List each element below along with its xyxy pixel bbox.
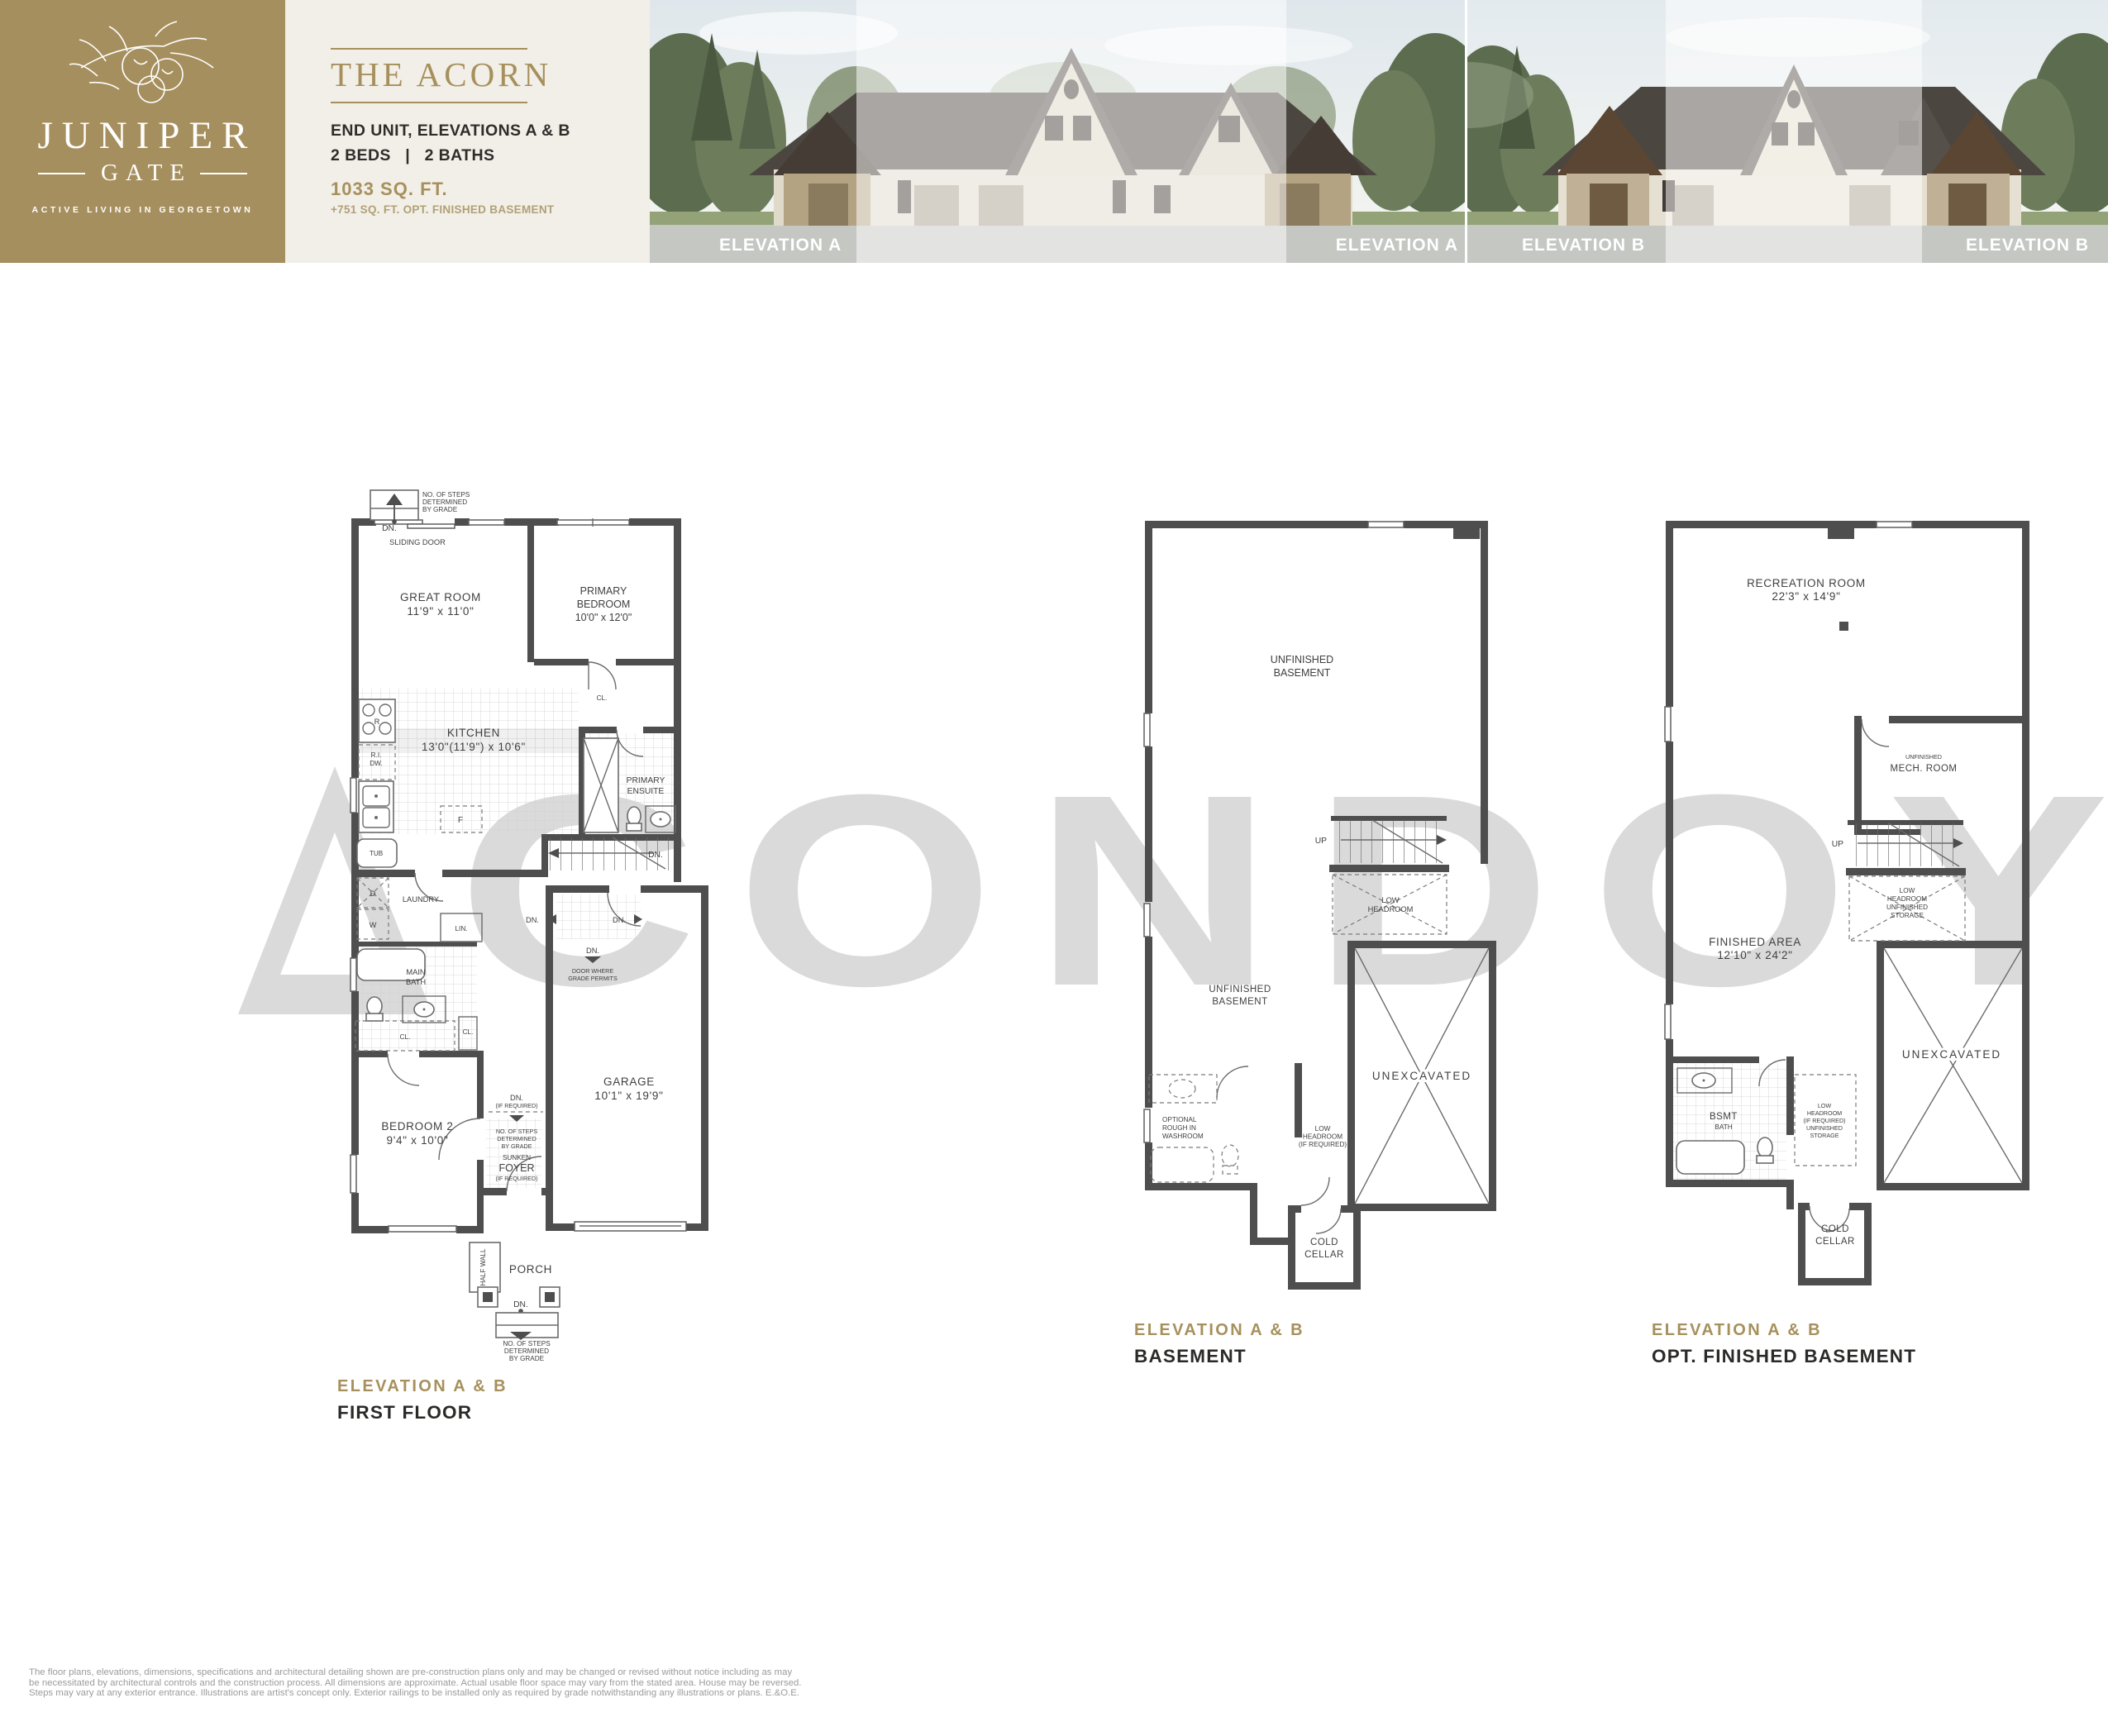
foyer-note: (IF REQUIRED) bbox=[495, 1175, 537, 1182]
brand-name-gate: GATE bbox=[38, 160, 247, 187]
dishwasher-label: R.I.DW. bbox=[370, 751, 382, 767]
unexcavated-area bbox=[1884, 948, 2022, 1183]
cold-cellar-label: COLDCELLAR bbox=[1815, 1224, 1855, 1247]
tub-label: TUB bbox=[370, 850, 384, 857]
first-floor-plan: NO. OF STEPSDETERMINEDBY GRADE DN. SLIDI… bbox=[335, 484, 748, 1364]
caption-elevation: ELEVATION A & B bbox=[1134, 1321, 1304, 1340]
brand-name: JUNIPER bbox=[0, 115, 285, 156]
disclaimer: The floor plans, elevations, dimensions,… bbox=[29, 1667, 1236, 1699]
square-footage-note: +751 SQ. FT. OPT. FINISHED BASEMENT bbox=[331, 203, 661, 216]
opt-finished-basement-caption: ELEVATION A & B OPT. FINISHED BASEMENT bbox=[1652, 1321, 1916, 1367]
low-headroom-label: LOWHEADROOM bbox=[1368, 896, 1414, 913]
first-floor-caption: ELEVATION A & B FIRST FLOOR bbox=[337, 1377, 508, 1424]
down-arrow-icon bbox=[584, 956, 601, 963]
plan-header: THE ACORN END UNIT, ELEVATIONS A & B 2 B… bbox=[331, 48, 661, 216]
opt-finished-basement-plan: RECREATION ROOM22'3" x 14'9" UNFINISHED … bbox=[1641, 496, 2063, 1310]
unexcavated-label: UNEXCAVATED bbox=[1902, 1048, 2001, 1061]
sliding-door-label: SLIDING DOOR bbox=[389, 538, 446, 546]
basement-caption: ELEVATION A & B BASEMENT bbox=[1134, 1321, 1304, 1367]
foyer-dn-label: DN. bbox=[510, 1094, 523, 1102]
juniper-branch-icon bbox=[64, 18, 222, 109]
steps-note-top: NO. OF STEPSDETERMINEDBY GRADE bbox=[422, 491, 470, 513]
mech-room-label: MECH. ROOM bbox=[1890, 764, 1957, 774]
cold-cellar-label: COLDCELLAR bbox=[1304, 1238, 1344, 1260]
closet-label: CL. bbox=[597, 694, 608, 702]
brand-tagline: ACTIVE LIVING IN GEORGETOWN bbox=[0, 205, 285, 215]
garage-label: GARAGE10'1" x 19'9" bbox=[594, 1075, 663, 1102]
bedroom2-label: BEDROOM 29'4" x 10'0" bbox=[381, 1120, 453, 1147]
foyer-steps-note: NO. OF STEPSDETERMINEDBY GRADE bbox=[496, 1128, 538, 1150]
caption-floor: BASEMENT bbox=[1134, 1346, 1304, 1367]
side-door-dn-label: DN. bbox=[586, 947, 599, 955]
porch-label: PORCH bbox=[509, 1263, 552, 1276]
disclaimer-line: be necessitated by architectural control… bbox=[29, 1678, 1236, 1689]
stairs-up bbox=[1333, 820, 1447, 934]
mech-room-small-label: UNFINISHED bbox=[1905, 753, 1942, 761]
stairs-up bbox=[1849, 823, 1965, 941]
up-label: UP bbox=[1315, 837, 1327, 846]
primary-bedroom-label: PRIMARYBEDROOM10'0" x 12'0" bbox=[575, 585, 632, 623]
header-band: JUNIPER GATE ACTIVE LIVING IN GEORGETOWN… bbox=[0, 0, 2108, 263]
linen-label: LIN. bbox=[455, 925, 467, 932]
sunken-label: SUNKEN bbox=[503, 1154, 531, 1161]
walls bbox=[1145, 521, 1496, 1290]
square-footage: 1033 SQ. FT. bbox=[331, 179, 661, 200]
dryer-label: D bbox=[370, 889, 376, 898]
fridge-label: F bbox=[458, 816, 463, 825]
elevation-b-rendering: ELEVATION B ELEVATION B bbox=[1465, 0, 2108, 263]
low-headroom-storage-label: LOWHEADROOMUNFINISHEDSTORAGE bbox=[1886, 887, 1928, 919]
door-arcs bbox=[1301, 1177, 1341, 1233]
foyer-dn-note: (IF REQUIRED) bbox=[495, 1102, 537, 1109]
caption-floor: FIRST FLOOR bbox=[337, 1402, 508, 1424]
disclaimer-line: Steps may vary at any exterior entrance.… bbox=[29, 1688, 1236, 1699]
elevation-a-label-left: ELEVATION A bbox=[719, 236, 842, 255]
door-where-grade-label: DOOR WHEREGRADE PERMITS bbox=[568, 967, 618, 982]
unexcavated-label: UNEXCAVATED bbox=[1372, 1070, 1471, 1082]
range-label: R bbox=[374, 718, 380, 726]
great-room-label: GREAT ROOM11'9" x 11'0" bbox=[400, 591, 481, 618]
elevation-b-label-left: ELEVATION B bbox=[1522, 236, 1645, 255]
elevation-a-rendering: ELEVATION A ELEVATION A bbox=[650, 0, 1465, 263]
floorplan-sheet: JUNIPER GATE ACTIVE LIVING IN GEORGETOWN… bbox=[0, 0, 2108, 1736]
closet-label: CL. bbox=[400, 1033, 411, 1041]
washer-label: W bbox=[370, 921, 377, 929]
bath-label: BATH bbox=[1715, 1123, 1732, 1131]
low-headroom-required-storage-label: LOWHEADROOM(IF REQUIRED)UNFINISHEDSTORAG… bbox=[1803, 1102, 1845, 1139]
landing-dn-left-label: DN. bbox=[526, 916, 539, 924]
beds-baths: 2 BEDS | 2 BATHS bbox=[331, 146, 661, 165]
landing-dn-right-label: DN. bbox=[613, 916, 626, 924]
basement-plan: UNFINISHEDBASEMENT UP LOWHEADROOM UNFINI… bbox=[1124, 496, 1521, 1310]
unfinished-basement-label: UNFINISHEDBASEMENT bbox=[1271, 654, 1333, 679]
caption-floor: OPT. FINISHED BASEMENT bbox=[1652, 1346, 1916, 1367]
caption-elevation: ELEVATION A & B bbox=[337, 1377, 508, 1396]
tiled-floors bbox=[355, 689, 674, 1188]
disclaimer-line: The floor plans, elevations, dimensions,… bbox=[29, 1667, 1236, 1678]
caption-elevation: ELEVATION A & B bbox=[1652, 1321, 1916, 1340]
exterior-steps-top bbox=[370, 490, 418, 524]
plan-subtitle: END UNIT, ELEVATIONS A & B bbox=[331, 122, 661, 141]
foyer-label: FOYER bbox=[498, 1162, 534, 1174]
juniper-gate-logo: JUNIPER GATE ACTIVE LIVING IN GEORGETOWN bbox=[0, 0, 285, 263]
recreation-room-label: RECREATION ROOM22'3" x 14'9" bbox=[1747, 577, 1866, 603]
page-title: THE ACORN bbox=[331, 57, 527, 92]
steps-note-bottom: NO. OF STEPSDETERMINEDBY GRADE bbox=[503, 1340, 551, 1362]
elevation-b-label-right: ELEVATION B bbox=[1966, 236, 2089, 255]
laundry-label: LAUNDRY bbox=[403, 895, 439, 904]
plan-title-rule: THE ACORN bbox=[331, 48, 527, 103]
low-headroom-required-label: LOWHEADROOM(IF REQUIRED) bbox=[1299, 1125, 1347, 1148]
closet-label: CL. bbox=[463, 1028, 474, 1036]
up-label: UP bbox=[1832, 840, 1843, 849]
bsmt-label: BSMT bbox=[1710, 1112, 1738, 1122]
finished-area-label: FINISHED AREA12'10" x 24'2" bbox=[1709, 936, 1801, 961]
optional-washroom-label: OPTIONALROUGH INWASHROOM bbox=[1162, 1116, 1204, 1140]
stairs-dn-label: DN. bbox=[648, 851, 663, 860]
dn-label: DN. bbox=[382, 524, 397, 533]
half-wall-label: HALF WALL bbox=[479, 1248, 487, 1286]
porch-dn-label: DN. bbox=[513, 1300, 528, 1309]
elevation-a-label-right: ELEVATION A bbox=[1336, 236, 1458, 255]
unfinished-basement-label: UNFINISHEDBASEMENT bbox=[1209, 985, 1271, 1007]
